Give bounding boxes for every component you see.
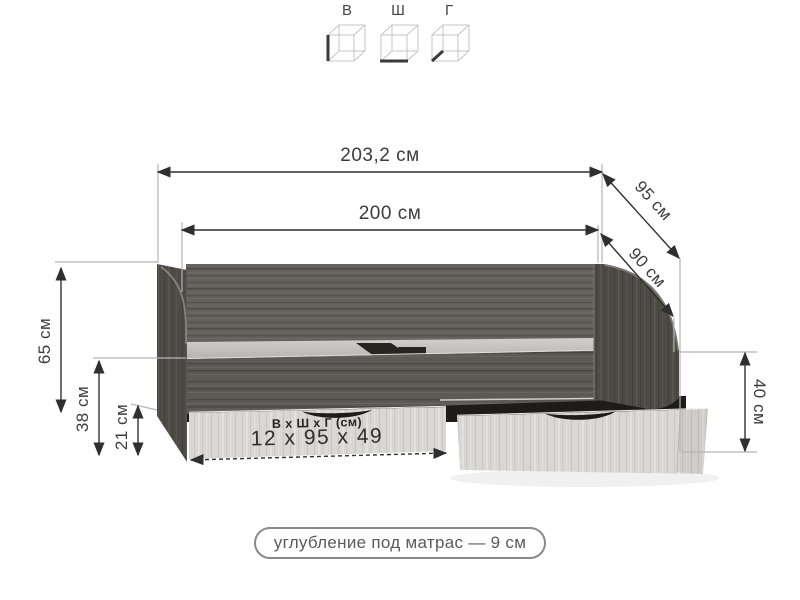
mattress-recess-note-text: углубление под матрас — 9 см (274, 533, 526, 553)
dim-label-mattress-length: 200 см (310, 204, 470, 224)
legend-cube-depth-icon (432, 25, 469, 61)
legend-cubes (328, 25, 469, 61)
left-side-panel-face (157, 264, 187, 462)
mattress-recess-note: углубление под матрас — 9 см (254, 527, 546, 559)
furniture-dimension-diagram: В Ш Г 203,2 см 200 см 95 см 90 см 65 см … (0, 0, 800, 600)
legend-label-depth: Г (409, 1, 489, 21)
dim-label-total-length: 203,2 см (300, 146, 460, 166)
bed-right-drawer (457, 408, 708, 474)
dim-label-drawer-front-height: 21 см (112, 387, 132, 467)
bed-backrest (186, 264, 594, 346)
bed-left-side-panel (157, 264, 187, 462)
legend-cube-height-icon (328, 25, 365, 61)
right-drawer-end-cap (677, 409, 708, 474)
dim-label-base-height: 38 см (73, 369, 93, 449)
diagram-canvas (0, 0, 800, 600)
drawer-dims-value: 12 х 95 х 49 (217, 425, 417, 452)
dim-label-right-height: 40 см (749, 362, 769, 442)
dim-label-left-height: 65 см (35, 301, 55, 381)
legend-cube-width-icon (380, 25, 418, 61)
